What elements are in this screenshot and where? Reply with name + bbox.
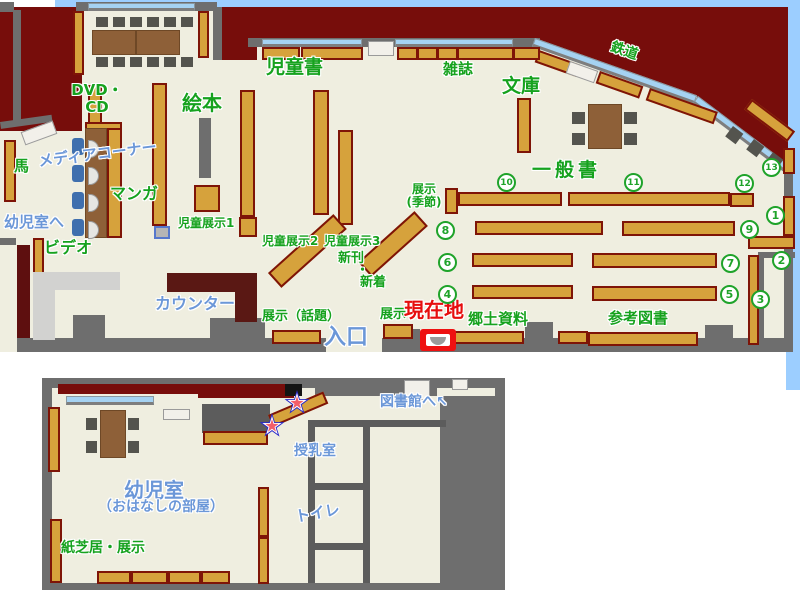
bookshelf	[783, 148, 795, 174]
bookshelf	[272, 330, 321, 344]
wall	[363, 427, 370, 583]
chair	[164, 57, 176, 67]
bookshelf	[517, 98, 531, 153]
label-exhibit-seasonal-2: (季節)	[407, 195, 442, 209]
bookshelf	[730, 193, 754, 207]
shelf-number-2: 2	[772, 251, 791, 270]
bookshelf	[168, 571, 201, 584]
bookshelf	[73, 11, 84, 75]
outside-area	[58, 384, 200, 394]
shelf-number-12: 12	[735, 174, 754, 193]
door	[368, 41, 394, 56]
bookshelf	[313, 90, 329, 215]
bookshelf	[513, 47, 540, 60]
bookshelf	[568, 192, 730, 206]
wall	[13, 10, 21, 126]
wall	[213, 7, 222, 60]
bookshelf	[592, 286, 717, 301]
chair	[181, 17, 193, 27]
label-counter: カウンター	[155, 295, 235, 313]
chair	[624, 112, 637, 124]
chair	[130, 17, 142, 27]
label-nursing-room: 授乳室	[294, 444, 336, 459]
bookshelf	[131, 571, 168, 584]
label-horse: 馬	[14, 158, 29, 175]
bookshelf	[239, 217, 257, 237]
label-to-infant-room: 幼児室へ	[4, 214, 64, 231]
label-infant-room: 幼児室	[124, 479, 184, 501]
shelf-number-5: 5	[720, 285, 739, 304]
chair	[128, 418, 139, 430]
star-icon	[259, 413, 285, 439]
bookshelf	[475, 221, 603, 235]
bookshelf	[472, 253, 573, 267]
table	[588, 104, 622, 149]
label-exhibit: 展示	[380, 308, 406, 322]
bookshelf	[383, 324, 413, 339]
wall	[440, 396, 496, 583]
label-cd: CD	[85, 98, 108, 116]
bookshelf	[48, 407, 60, 472]
label-paperbacks: 文庫	[502, 76, 540, 97]
shelf-number-4: 4	[438, 285, 457, 304]
label-reference-books: 参考図書	[608, 310, 668, 327]
bookshelf	[592, 253, 717, 268]
label-dvd-cd: DVD・ CD	[70, 82, 124, 115]
chair	[86, 441, 97, 453]
bookshelf	[194, 185, 220, 212]
label-to-library: 図書館へ↖	[380, 395, 448, 410]
label-childrens-books: 児童書	[266, 57, 323, 78]
shelf-number-1: 1	[766, 206, 785, 225]
chair	[72, 165, 84, 182]
table	[100, 410, 126, 458]
star-icon	[284, 390, 310, 416]
shelf-number-10: 10	[497, 173, 516, 192]
label-dvd: DVD・	[71, 81, 123, 99]
wall	[705, 325, 733, 347]
label-exhibit-seasonal: 展示 (季節)	[400, 183, 448, 209]
up-left-arrow-icon: ↖	[436, 394, 448, 410]
bookshelf	[437, 47, 458, 60]
wall	[315, 483, 370, 490]
label-current-location: 現在地	[404, 299, 464, 321]
library-floor-map: 児童書 雑誌 文庫 鉄道 DVD・ CD 絵本 メディアコーナー マンガ 馬 幼…	[0, 0, 800, 590]
label-magazines: 雑誌	[443, 61, 473, 78]
chair	[72, 219, 84, 236]
door	[452, 379, 468, 390]
chair	[624, 133, 637, 145]
label-general-books: 一般書	[532, 160, 601, 181]
chair	[96, 17, 108, 27]
label-child-exhibit-2: 児童展示2	[262, 235, 318, 248]
label-child-exhibit-3: 児童展示3	[324, 235, 380, 248]
chair	[86, 418, 97, 430]
staff-area	[33, 290, 55, 340]
outside-area	[213, 7, 538, 41]
outside-area	[198, 384, 294, 398]
chair	[572, 133, 585, 145]
bookshelf	[240, 90, 255, 217]
window-strip	[66, 396, 154, 405]
shelf-number-3: 3	[751, 290, 770, 309]
chair	[130, 57, 142, 67]
bookshelf	[397, 47, 418, 60]
window-strip	[262, 39, 362, 47]
wall	[525, 322, 553, 339]
chair	[181, 57, 193, 67]
shelf-number-11: 11	[624, 173, 643, 192]
bookshelf	[198, 11, 209, 58]
shelf-number-6: 6	[438, 253, 457, 272]
label-exhibit-topical: 展示（話題）	[262, 310, 340, 324]
bookshelf	[622, 221, 735, 236]
wall	[0, 2, 14, 12]
wall	[73, 315, 105, 339]
shelf-number-7: 7	[721, 254, 740, 273]
bookshelf	[33, 238, 44, 275]
chair	[128, 441, 139, 453]
label-entrance: 入口	[324, 326, 368, 350]
bookshelf	[97, 571, 131, 584]
label-to-library-text: 図書館へ	[380, 394, 436, 410]
label-manga: マンガ	[110, 185, 158, 203]
label-video: ビデオ	[44, 239, 92, 257]
shelf-number-9: 9	[740, 220, 759, 239]
current-location-marker	[420, 329, 456, 351]
table	[136, 30, 180, 55]
wall	[17, 338, 32, 352]
bookshelf	[748, 236, 795, 249]
chair	[72, 192, 84, 209]
shelf-number-8: 8	[436, 221, 455, 240]
window-strip	[395, 39, 513, 47]
wall-feature	[17, 245, 30, 340]
label-picture-books: 絵本	[182, 92, 222, 114]
wall	[0, 238, 16, 245]
bookshelf	[338, 130, 353, 225]
wall	[199, 118, 211, 178]
wall	[308, 420, 446, 427]
chair	[113, 57, 125, 67]
chair	[572, 112, 585, 124]
chair	[147, 57, 159, 67]
label-storytelling-room: （おはなしの部屋）	[98, 500, 224, 515]
staff-area	[33, 272, 120, 290]
bookshelf	[457, 47, 514, 60]
bookshelf	[417, 47, 438, 60]
table	[92, 30, 136, 55]
bookshelf	[458, 192, 562, 206]
bookshelf	[588, 332, 698, 346]
bookshelf	[558, 331, 588, 344]
window-strip	[88, 3, 195, 11]
bookshelf	[258, 537, 269, 584]
service-counter	[235, 292, 257, 322]
bookshelf	[201, 571, 230, 584]
wall	[315, 543, 370, 550]
chair	[113, 17, 125, 27]
bookshelf	[452, 331, 524, 344]
service-counter	[167, 273, 257, 292]
bookshelf	[258, 487, 269, 537]
label-local-materials: 郷土資料	[468, 311, 528, 328]
bookshelf	[472, 285, 573, 299]
chair	[96, 57, 108, 67]
chair	[147, 17, 159, 27]
label-picture-story-exhibit: 紙芝居・展示	[61, 541, 145, 556]
chair	[164, 17, 176, 27]
shelf-number-13: 13	[762, 158, 781, 177]
display-stand	[154, 226, 170, 239]
door	[163, 409, 190, 420]
label-child-exhibit-1: 児童展示1	[178, 217, 234, 230]
label-exhibit-seasonal-1: 展示	[412, 182, 436, 196]
label-new-books-2: 新着	[360, 276, 386, 290]
